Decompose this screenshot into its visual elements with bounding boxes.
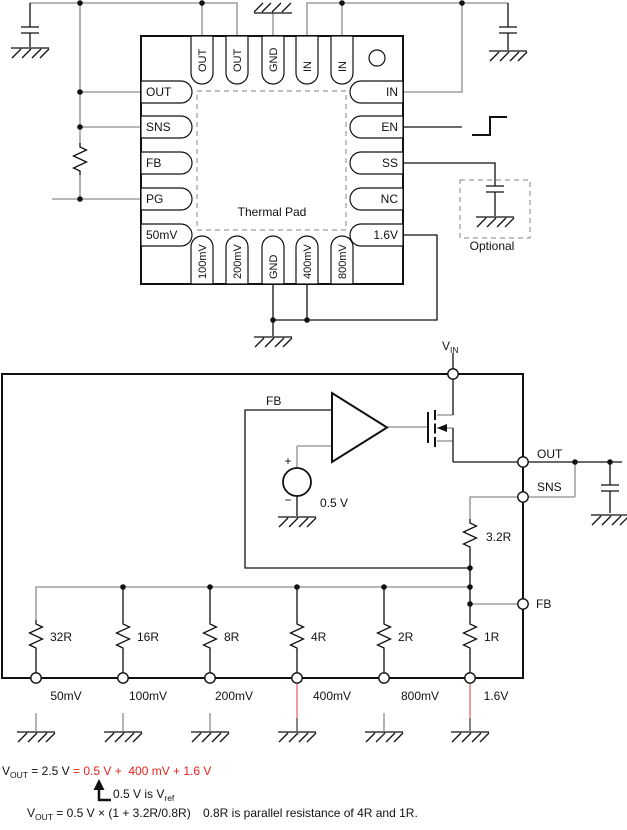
junction-dot — [381, 584, 387, 590]
junction-dot — [120, 584, 126, 590]
pin-right-ss-label: SS — [382, 156, 398, 170]
junction-dot — [607, 459, 613, 465]
ground-symbol-vref — [278, 517, 316, 527]
pg-pullup-resistor — [74, 143, 87, 175]
pin-top-out1-label: OUT — [197, 49, 209, 73]
opamp-plus-input-wire — [297, 446, 332, 468]
ground-symbol-1p6v — [451, 732, 489, 742]
vref-value-label: 0.5 V — [320, 496, 348, 510]
ground-symbol-output-cap — [591, 515, 627, 525]
block-diagram: VIN FB + − 0.5 V 3.2R 32R 16R 8R 4R 2R 1… — [2, 339, 627, 742]
fb-wire-label: FB — [266, 394, 281, 408]
resistor-16r-label: 16R — [137, 630, 159, 644]
out-terminal-label: OUT — [537, 447, 563, 461]
ground-symbol-left-cap — [11, 48, 49, 58]
input-capacitor-right — [499, 27, 517, 33]
error-amplifier — [332, 393, 387, 462]
output-capacitor-left — [21, 27, 39, 33]
junction-dot — [294, 584, 300, 590]
ground-symbol-top-gnd-pin — [254, 3, 292, 13]
tap-terminal-1p6v — [465, 673, 475, 683]
tap-label-1p6v: 1.6V — [484, 689, 509, 703]
tap-label-200mv: 200mV — [215, 689, 253, 703]
top-circuit: Optional Thermal Pad OUT SNS FB PG 50mV … — [11, 0, 530, 347]
tap-terminal-200mv — [205, 673, 215, 683]
resistor-2r — [378, 620, 391, 652]
junction-dot — [77, 0, 83, 6]
pin-left-sns-label: SNS — [146, 120, 171, 134]
pin-bottom-400mv-label: 400mV — [302, 243, 314, 279]
floating-ground-stubs — [36, 713, 384, 731]
fb-terminal — [518, 599, 528, 609]
output-capacitor — [601, 485, 619, 491]
soft-start-capacitor — [486, 186, 504, 192]
fb-terminal-label: FB — [536, 597, 551, 611]
pin-left-fb-label: FB — [146, 156, 161, 170]
pin-right-1p6v-label: 1.6V — [373, 228, 398, 242]
formula-line1: VOUT = 2.5 V = 0.5 V + 400 mV + 1.6 V — [2, 764, 211, 780]
resistor-3p2r — [464, 519, 477, 551]
in-net-rail — [307, 3, 508, 36]
ladder-top-bus — [36, 587, 470, 620]
out-terminal — [518, 457, 528, 467]
junction-dot — [304, 317, 310, 323]
resistor-1r-label: 1R — [484, 630, 500, 644]
tap-label-800mv: 800mV — [401, 689, 439, 703]
tap-label-100mv: 100mV — [129, 689, 167, 703]
junction-dot — [572, 459, 578, 465]
resistor-32r — [30, 620, 43, 652]
junction-dot — [270, 317, 276, 323]
junction-dot — [199, 0, 205, 6]
out-net-rail — [30, 3, 237, 36]
tap-label-50mv: 50mV — [50, 689, 81, 703]
sns-internal-wire — [470, 497, 518, 519]
pin-top-in2-label: IN — [337, 61, 349, 72]
pin-top-out2-label: OUT — [232, 49, 244, 73]
resistor-1r — [464, 620, 477, 652]
resistor-4r — [291, 620, 304, 652]
resistor-8r-label: 8R — [224, 630, 240, 644]
pin-bottom-800mv-label: 800mV — [337, 243, 349, 279]
pin-left-50mv-label: 50mV — [146, 228, 177, 242]
junction-dot — [459, 0, 465, 6]
ground-symbol-400mv — [278, 732, 316, 742]
schematic-figure: Optional Thermal Pad OUT SNS FB PG 50mV … — [0, 0, 627, 825]
ground-symbol-right-cap — [489, 51, 527, 61]
pin-top-in2 — [331, 36, 353, 84]
resistor-8r — [204, 620, 217, 652]
pin-top-in1 — [296, 36, 318, 84]
junction-dot — [77, 124, 83, 130]
pin-bottom-gnd-label: GND — [268, 255, 280, 280]
pin-left-out-label: OUT — [146, 85, 172, 99]
ground-symbol-800mv — [365, 732, 403, 742]
resistor-4r-label: 4R — [311, 630, 327, 644]
thermal-pad-label: Thermal Pad — [238, 205, 307, 219]
vref-plus-sign: + — [284, 454, 291, 468]
sns-terminal — [518, 492, 528, 502]
vref-source — [283, 468, 311, 496]
vin-terminal — [448, 369, 458, 379]
enable-step-signal — [472, 117, 507, 135]
pin-right-in-label: IN — [386, 85, 398, 99]
junction-dot — [207, 584, 213, 590]
junction-dot — [467, 584, 473, 590]
pin-right-nc-label: NC — [381, 192, 399, 206]
fb-loop-wire — [245, 410, 470, 568]
pin-bottom-100mv-label: 100mV — [197, 243, 209, 279]
vin-label: VIN — [442, 339, 459, 355]
junction-dot — [339, 0, 345, 6]
junction-dot — [467, 601, 473, 607]
ground-symbol-200mv — [191, 732, 229, 742]
resistor-32r-label: 32R — [50, 630, 72, 644]
tap-terminal-800mv — [379, 673, 389, 683]
formula-line3: VOUT = 0.5 V × (1 + 3.2R/0.8R)0.8R is pa… — [27, 806, 418, 822]
junction-dot — [77, 196, 83, 202]
ss-wire — [403, 163, 495, 186]
resistor-3p2r-label: 3.2R — [486, 530, 512, 544]
junction-dot — [467, 565, 473, 571]
ground-symbol-50mv — [17, 732, 55, 742]
junction-dot — [77, 89, 83, 95]
sns-terminal-label: SNS — [537, 480, 562, 494]
formulas: VOUT = 2.5 V = 0.5 V + 400 mV + 1.6 V 0.… — [2, 764, 418, 822]
mosfet-body-arrow — [437, 424, 447, 432]
ground-symbol-100mv — [104, 732, 142, 742]
optional-label: Optional — [470, 239, 515, 253]
in-right-branch — [403, 3, 462, 92]
formula-line2: 0.5 V is Vref — [113, 787, 175, 803]
vref-pointer-arrowhead — [94, 779, 105, 790]
resistor-16r — [117, 620, 130, 652]
block-outline — [2, 374, 523, 678]
tap-label-400mv: 400mV — [313, 689, 351, 703]
ground-symbol-ss-cap — [476, 217, 514, 227]
pin-bottom-200mv-label: 200mV — [232, 243, 244, 279]
tap-terminal-100mv — [118, 673, 128, 683]
ground-symbol-bottom-pins — [254, 337, 292, 347]
pin-top-gnd-label: GND — [268, 48, 280, 73]
pin-right-en-label: EN — [381, 120, 398, 134]
pin-top-in1-label: IN — [302, 61, 314, 72]
tap-terminal-50mv — [31, 673, 41, 683]
tap-terminal-400mv — [292, 673, 302, 683]
pin-left-pg-label: PG — [146, 192, 163, 206]
resistor-2r-label: 2R — [398, 630, 414, 644]
vref-minus-sign: − — [284, 493, 291, 507]
